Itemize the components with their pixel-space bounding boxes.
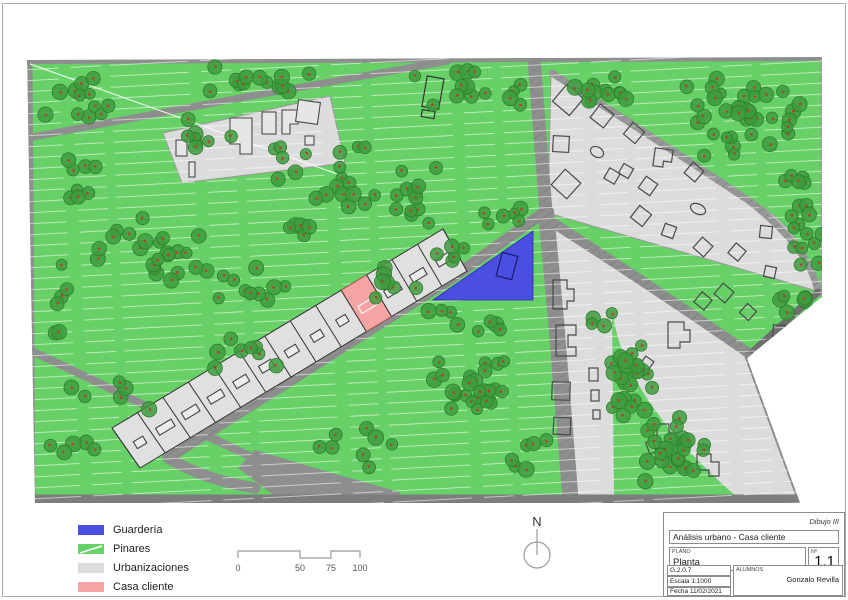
urbanizaciones-swatch: [78, 563, 104, 573]
students-label: ALUMNOS: [736, 567, 763, 573]
scale-tick-100: 100: [352, 563, 367, 573]
legend-label: Urbanizaciones: [113, 562, 189, 574]
drawing-scale: Escala 1:1000: [667, 576, 731, 587]
scale-tick-50: 50: [295, 563, 305, 573]
legend-item-pinares: Pinares: [78, 540, 189, 558]
drawing-date: Fecha 11/02/2021: [667, 587, 731, 596]
casa-cliente-swatch: [78, 582, 104, 592]
scale-bar-line: [238, 551, 360, 558]
project-code: G.2.0.7: [667, 565, 731, 576]
course-label: Dibujo III: [809, 517, 839, 526]
north-label: N: [532, 514, 541, 529]
scale-tick-0: 0: [235, 563, 240, 573]
guarderia-swatch: [78, 525, 104, 535]
title-block: Dibujo III Análisis urbano - Casa client…: [663, 512, 845, 597]
legend-label: Pinares: [113, 543, 150, 555]
north-arrow: N: [515, 512, 559, 572]
students-cell: ALUMNOS Gonzalo Revilla: [733, 565, 843, 596]
drawing-title: Análisis urbano - Casa cliente: [669, 530, 839, 544]
drawing-sheet: Guardería Pinares Urbanizaciones Casa cl…: [0, 0, 848, 600]
site-plan-map: [0, 0, 848, 600]
scale-tick-75: 75: [326, 563, 336, 573]
scale-bar: 0 50 75 100: [228, 545, 378, 577]
student-name: Gonzalo Revilla: [786, 575, 839, 584]
plan-label: PLANO: [672, 549, 691, 555]
legend-item-guarderia: Guardería: [78, 521, 189, 539]
legend-item-urbanizaciones: Urbanizaciones: [78, 559, 189, 577]
legend-label: Guardería: [113, 524, 163, 536]
legend-item-casa-cliente: Casa cliente: [78, 578, 189, 596]
legend-label: Casa cliente: [113, 581, 174, 593]
legend: Guardería Pinares Urbanizaciones Casa cl…: [78, 521, 189, 597]
